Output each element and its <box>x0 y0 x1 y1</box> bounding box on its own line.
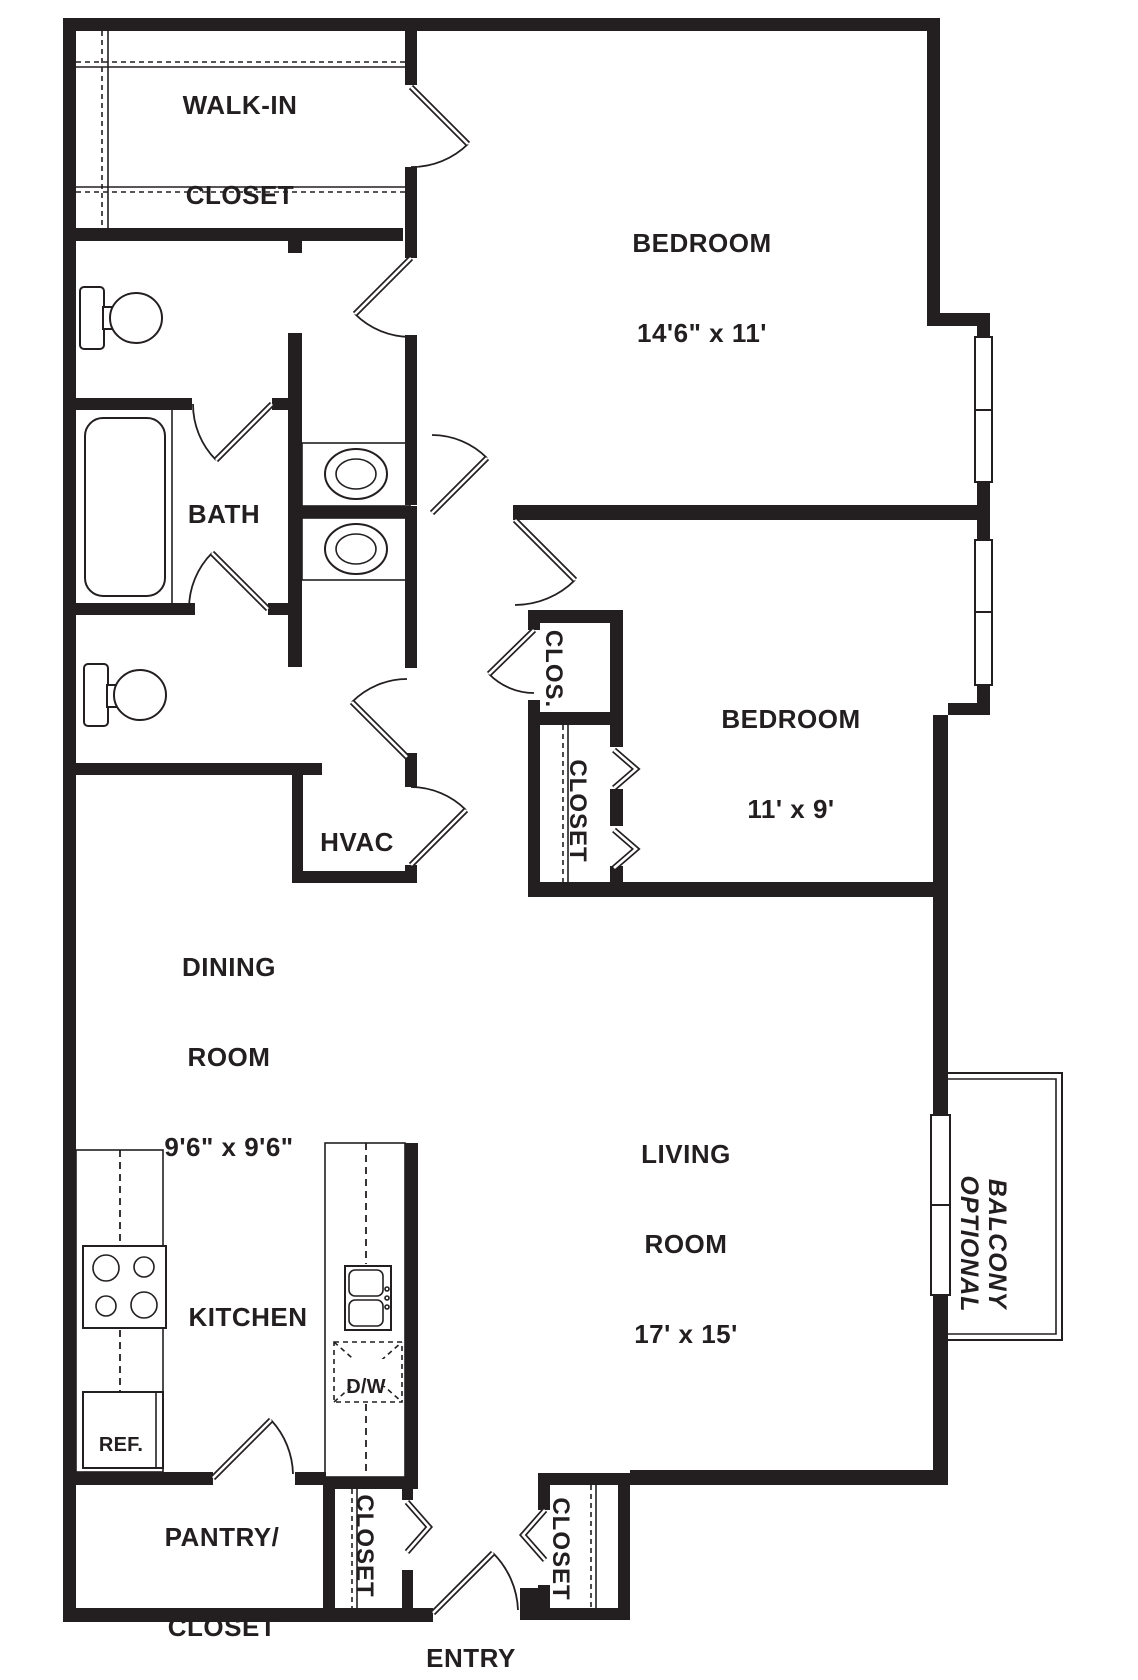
dishwasher-label: D/W <box>346 1312 385 1432</box>
vanity-sink-icon <box>302 443 410 506</box>
bathtub-icon <box>85 410 172 603</box>
door-swing-icon <box>411 87 468 167</box>
clos-closet-label: CLOS. <box>508 630 628 708</box>
vanity-sink-icon <box>302 518 410 580</box>
entry-closet-left-label: CLOSET <box>319 1494 439 1597</box>
window-icon <box>975 540 992 685</box>
refrigerator-label: REF. <box>99 1370 143 1490</box>
rentlinx-watermark: rentlinx´ <box>8 1648 112 1680</box>
door-swing-icon <box>515 520 575 605</box>
hvac-label: HVAC <box>320 767 394 887</box>
window-icon <box>975 337 992 482</box>
pantry-closet-label: PANTRY/ CLOSET <box>165 1462 280 1672</box>
door-swing-icon <box>355 258 411 337</box>
toilet-icon <box>84 664 166 726</box>
entry-label: ENTRY <box>426 1583 516 1680</box>
living-room-label: LIVING ROOM 17' x 15' <box>634 1079 738 1379</box>
toilet-icon <box>80 287 162 349</box>
stove-icon <box>83 1246 166 1328</box>
door-swing-icon <box>432 435 487 513</box>
entry-closet-right-label: CLOSET <box>515 1497 635 1600</box>
bedroom-2-closet-label: CLOSET <box>532 759 652 862</box>
balcony-label-balcony: BALCONY <box>952 1179 1072 1310</box>
door-swing-icon <box>411 787 466 865</box>
door-swing-icon <box>352 679 407 757</box>
door-swing-icon <box>189 553 268 609</box>
walk-in-closet-label: WALK-IN CLOSET <box>183 30 298 240</box>
bedroom-1-label: BEDROOM 14'6" x 11' <box>632 168 771 378</box>
floor-plan: WALK-IN CLOSET BEDROOM 14'6" x 11' BATH … <box>0 0 1138 1680</box>
dining-room-label: DINING ROOM 9'6" x 9'6" <box>164 892 293 1192</box>
bedroom-2-label: BEDROOM 11' x 9' <box>721 644 860 854</box>
kitchen-label: KITCHEN <box>188 1242 307 1362</box>
bath-label: BATH <box>188 439 260 559</box>
